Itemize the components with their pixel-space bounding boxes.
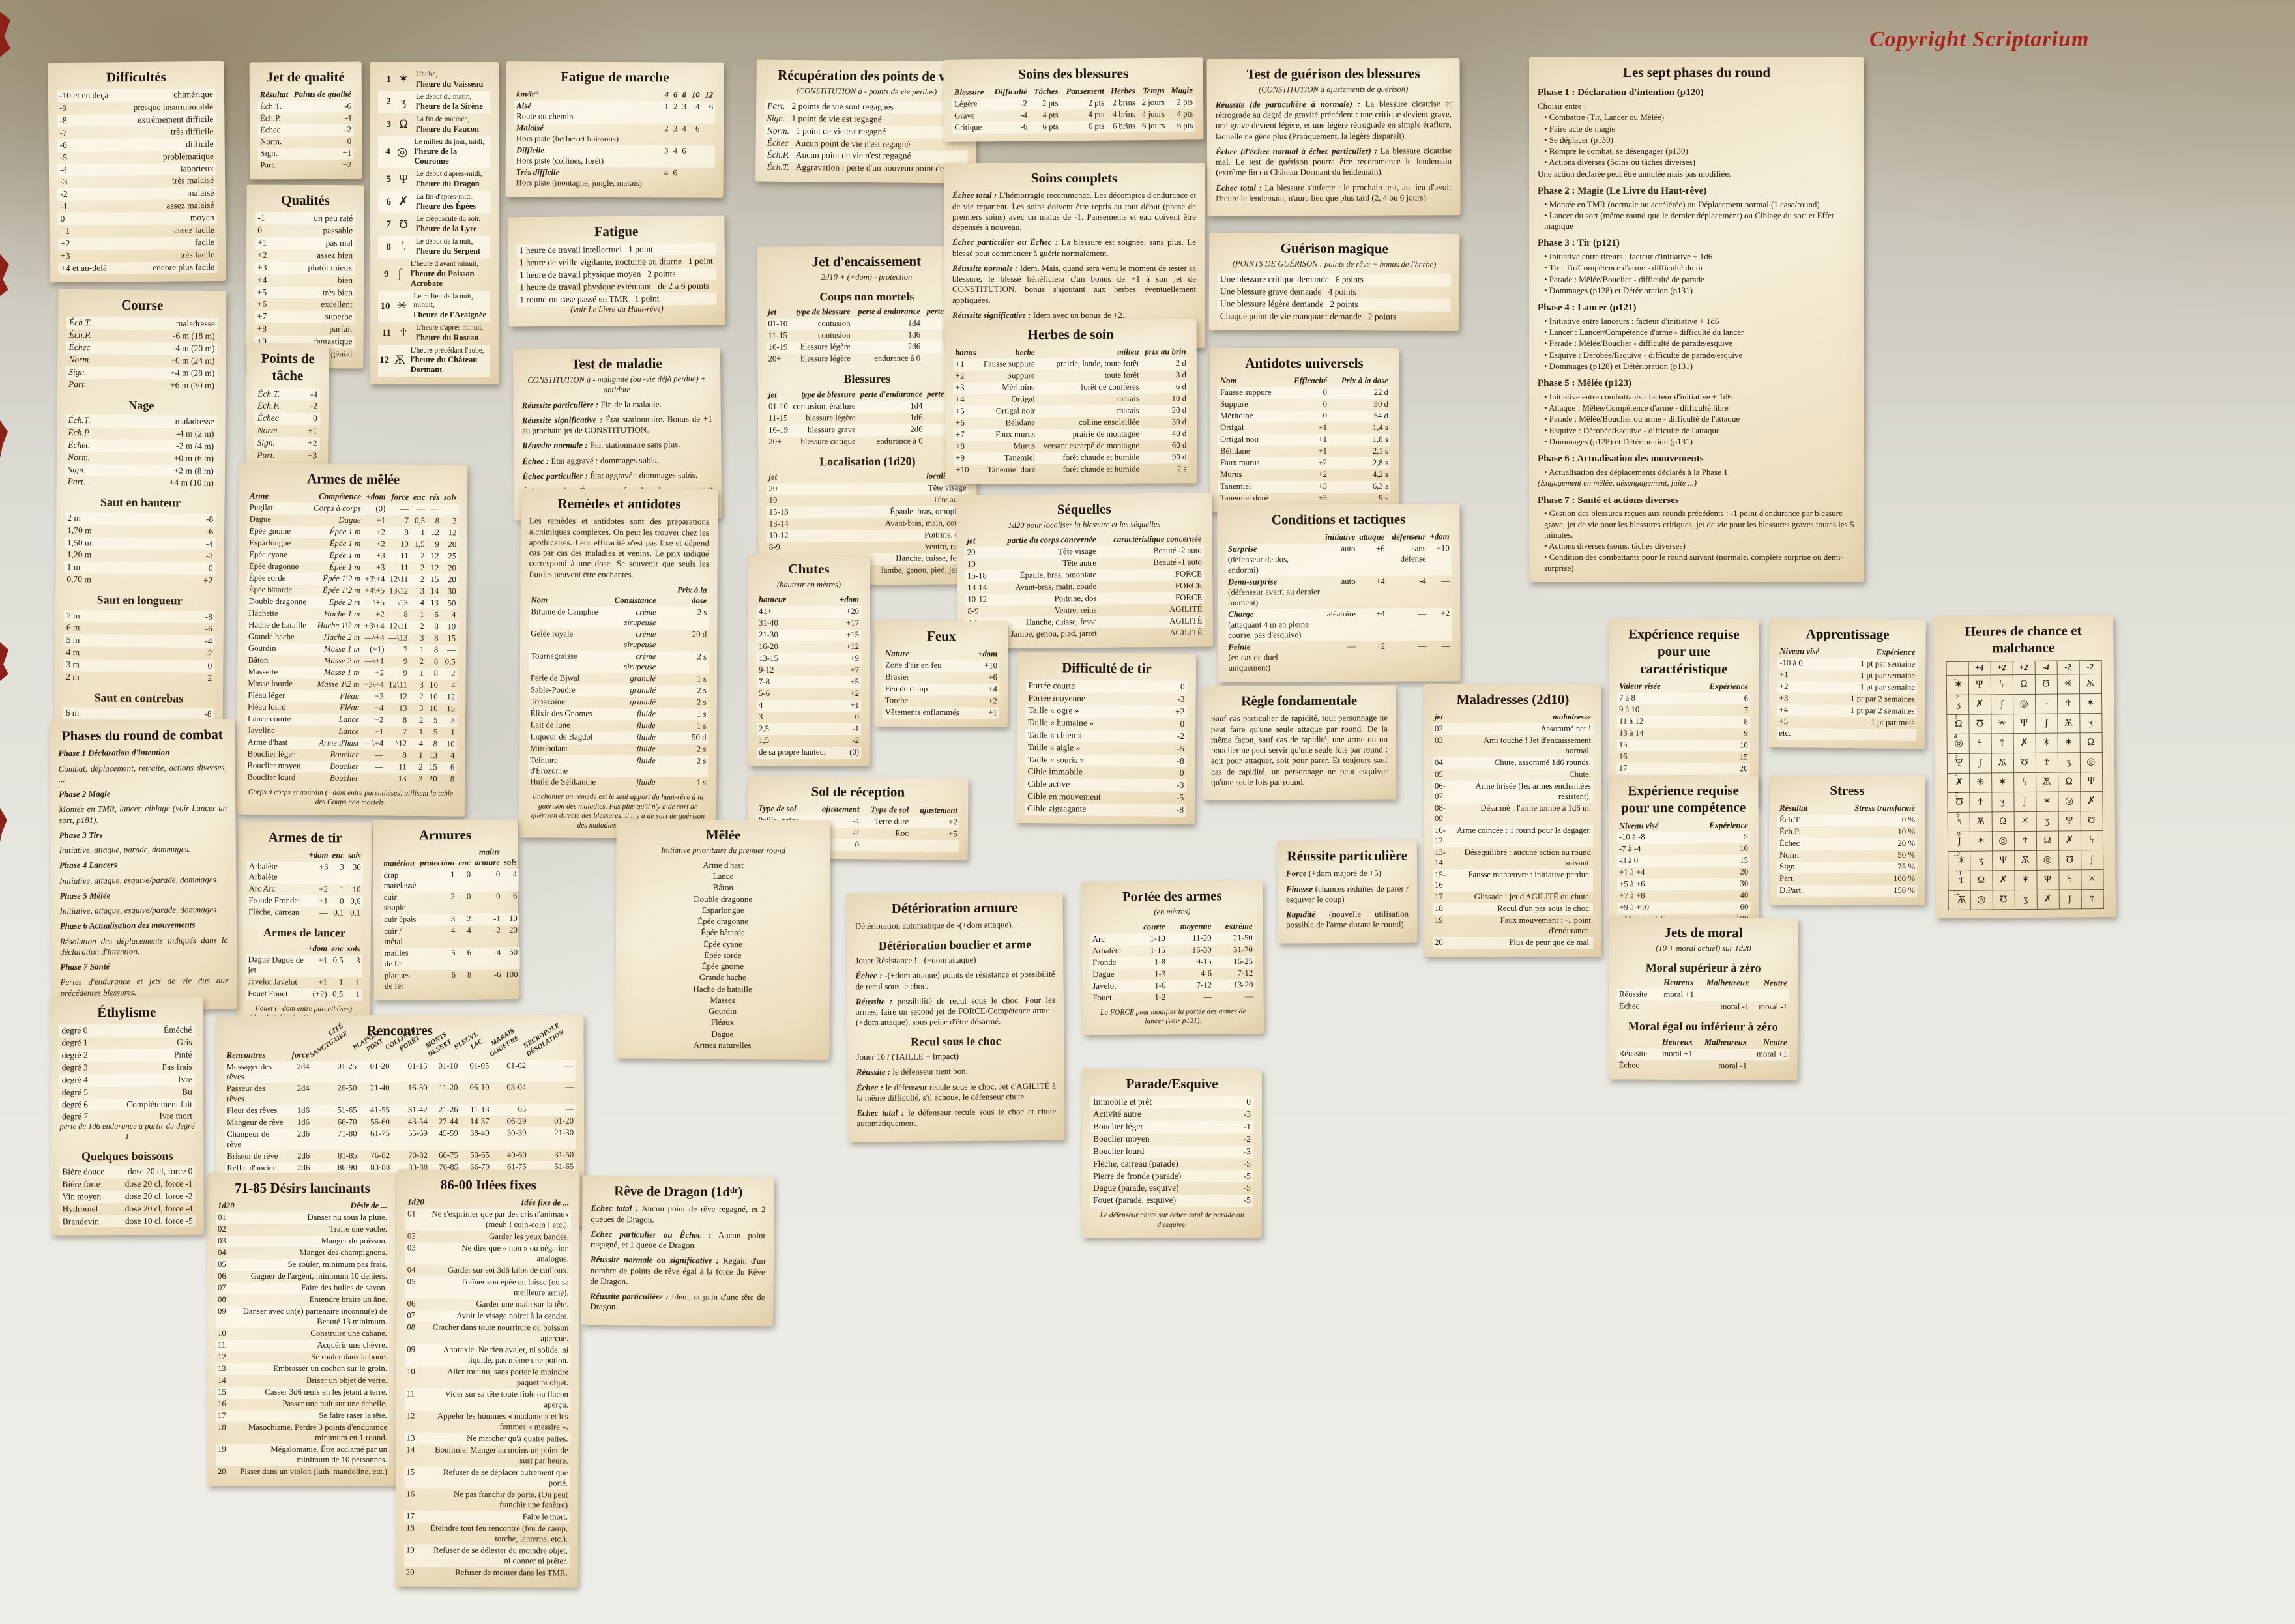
cell: 2 brins	[1106, 97, 1137, 109]
column-header: milieu	[1036, 347, 1141, 359]
card-title: Portée des armes	[1090, 887, 1254, 905]
cell: 15	[426, 574, 441, 586]
paragraph-lead: Phase 4 Lancers	[59, 860, 117, 871]
cell: —	[1387, 641, 1428, 673]
table-row: Fronde1-89-1516-25	[1090, 956, 1255, 969]
cell: Épée dragonne	[247, 561, 310, 573]
cell: Traîner son épée en laisse (ou sa meille…	[426, 1277, 571, 1299]
cell: +6	[972, 672, 999, 684]
card-difficulte-tir: Difficulté de tirPortée courte0Portée mo…	[1016, 652, 1196, 824]
cell: Faire des bulles de savon.	[237, 1283, 389, 1294]
cell: Masse 2 m	[309, 655, 361, 667]
column-header: extrême	[1213, 921, 1254, 933]
row-value: problématique	[163, 151, 214, 163]
table-row: 06-07Arme brisée (les armes enchantées r…	[1433, 781, 1593, 803]
column-header: Valeur visée	[1617, 680, 1686, 692]
column-header	[1090, 921, 1133, 934]
cell: 2	[662, 124, 671, 146]
cell: Épaule, bras, omoplate	[992, 570, 1098, 582]
cell: 17	[1617, 762, 1686, 774]
table-head: +domencsols	[246, 942, 362, 955]
paragraph: Échec particulier ou Échec : La blessure…	[952, 237, 1196, 259]
cell: Hanche, cuisse, fesse	[993, 616, 1099, 629]
table-body: Dague Dague de jet+10,53Javelot Javelot+…	[246, 954, 362, 1000]
paragraph: Échec : le défenseur recule sous le choc…	[856, 1080, 1056, 1103]
row-label: Norm.	[68, 452, 90, 463]
cell: Tête autre	[992, 558, 1098, 570]
dragon-hour-icon: Ω	[2013, 674, 2035, 694]
line: • Parade : Mêlée/Bouclier - difficulté d…	[1544, 274, 1856, 285]
cell: D.Part.	[1777, 885, 1824, 897]
cell: 4	[440, 680, 458, 691]
dragon-hour-icon: Ѫ	[2014, 850, 2036, 870]
dragon-hour-icon: ◎	[2080, 752, 2102, 772]
cell: Dague	[1090, 968, 1133, 981]
line: • Actions diverses (Soins ou tâches dive…	[1544, 157, 1856, 167]
table-row: 19Faux mouvement : -1 point d'endurance.	[1433, 915, 1593, 937]
column-header: herbe	[979, 347, 1036, 358]
row-value: -2	[205, 648, 212, 660]
cell: 40-60	[491, 1150, 529, 1162]
dragon-hour-icon: Ʊ	[2081, 811, 2103, 830]
dragon-hour-icon: ʃ	[394, 267, 406, 282]
table-row: Taille « humaine »0	[1025, 717, 1187, 731]
table-row: -9presque insurmontable	[57, 101, 216, 115]
table-row: Norm.+0 m (6 m)	[65, 452, 216, 465]
cell: 4	[688, 102, 702, 124]
line: Une action déclarée peut être annulée ma…	[1538, 169, 1856, 179]
cell: +3	[954, 383, 980, 394]
row-value: -8	[205, 611, 212, 622]
paragraph: Sauf cas particulier de rapidité, tout p…	[1211, 713, 1388, 788]
cell: Fléau léger	[246, 690, 309, 703]
cell: FORCE	[1098, 580, 1204, 592]
row-value: -5	[1177, 744, 1184, 755]
cell: 05	[1433, 769, 1454, 781]
row-value: +4 m (28 m)	[170, 368, 214, 379]
table-row: 0,70 m+2	[64, 573, 215, 587]
line: • Initiative entre combattants : facteur…	[1544, 392, 1856, 402]
cell: 01-02	[491, 1060, 528, 1082]
column-header: 1d20	[405, 1197, 426, 1209]
data-table: Nature+domZone d'air en feu+10Brasier+6F…	[883, 648, 999, 719]
hour-description: Le début d'après-midi,	[416, 170, 482, 179]
table-row: Sign.+4 m (28 m)	[66, 366, 217, 380]
cell: 1-8	[1133, 957, 1167, 968]
table-row: Échec-2	[258, 124, 353, 137]
card-title: Course	[66, 296, 218, 314]
card-deterioration: Détérioration armureDétérioration automa…	[846, 892, 1064, 1142]
row-label: Part.	[68, 476, 86, 487]
cell: 3	[408, 774, 424, 785]
cell: 10	[216, 1328, 237, 1340]
row-value: dose 20 cl, force 0	[128, 1167, 192, 1178]
table-row: Portée moyenne-3	[1025, 692, 1187, 706]
hour-text: L'heure précédant l'aube,l'heure du Chât…	[411, 347, 489, 375]
hour-row: 12ѪL'heure précédant l'aube,l'heure du C…	[378, 345, 490, 377]
cell: fluide	[599, 777, 657, 789]
paragraph-lead: Phase 2 Magie	[59, 789, 111, 799]
paragraphs: Les remèdes et antidotes sont des prépar…	[529, 516, 709, 581]
column-header: Niveau visé	[1617, 820, 1689, 832]
cell: 12\11	[387, 621, 410, 633]
paragraph-lead: Échec (d'échec normal à échec particulie…	[1216, 146, 1377, 156]
row-label: 0	[61, 214, 65, 225]
table-row: Javelot1-67-1213-20	[1090, 979, 1255, 993]
section-subtitle: (10 + moral actuel) sur 1d20	[1617, 944, 1789, 955]
column-header: matériau	[381, 848, 418, 870]
cell: 19	[404, 1544, 425, 1567]
column-header: Stress transformé	[1824, 803, 1917, 815]
cell: 10	[387, 539, 411, 551]
row-value: -2	[1244, 1134, 1251, 1145]
cell: auto	[1323, 544, 1357, 576]
cell: 12\11	[387, 574, 410, 586]
table-row: plaques de fer68-6100	[383, 969, 520, 993]
cell: Garder une main sur la tête.	[426, 1299, 570, 1311]
data-table: BlessureDifficultéTâchesPansementHerbesT…	[952, 85, 1195, 134]
cell: 18	[1433, 903, 1454, 915]
cell: Appeler les hommes « madame » et les fem…	[425, 1411, 570, 1434]
table-row: +11 pt par semaine	[1777, 669, 1917, 682]
cell: 5	[1689, 832, 1750, 843]
cell: forêt de conifères	[1037, 382, 1141, 394]
cell: Feu de camp	[883, 684, 972, 696]
card-title: Sol de réception	[756, 783, 959, 802]
cell: Javelot	[1090, 980, 1133, 993]
row-value: -3	[1177, 780, 1184, 791]
hours-list: 1✶L'aube,l'heure du Vaisseau2ʒLe début d…	[378, 68, 490, 377]
table-row: Échec20 %	[1777, 838, 1917, 850]
column-header: prix au brin	[1141, 346, 1188, 358]
row-label: Chaque point de vie manquant demande	[1220, 311, 1362, 323]
table-row: 01-10contusion1d40	[766, 318, 967, 330]
hour-number: 7	[379, 218, 391, 231]
cell: Ne s'exprimer que par des cris d'animaux…	[426, 1209, 572, 1232]
column-header: enc	[329, 943, 345, 955]
cell: Ami touché ! Jet d'encaissement normal.	[1454, 735, 1593, 757]
cell: +9 à +10	[1617, 902, 1689, 914]
table-row: cuir épais32-110	[382, 913, 519, 926]
cell: 2	[409, 715, 425, 727]
card-herbes-soin: Herbes de soinbonusherbemilieuprix au br…	[944, 319, 1197, 484]
table-row: 41++20	[757, 606, 861, 618]
row-value: un peu raté	[314, 213, 353, 224]
card-heures-jour: 1✶L'aube,l'heure du Vaisseau2ʒLe début d…	[370, 62, 499, 384]
cell: 22 d	[1329, 387, 1390, 399]
row-label: Hydromel	[63, 1204, 98, 1215]
table-row: -7 à -410	[1617, 843, 1750, 856]
card-title: Points de tâche	[255, 350, 320, 384]
column-header: enc	[411, 492, 427, 504]
dragon-hour-icon: ◎	[2058, 791, 2080, 811]
paragraphs: Jouer 10 / (TAILLE + Impact)Réussite : l…	[856, 1051, 1056, 1129]
cell: Dague	[248, 514, 311, 527]
row-value: 1 point de vie est regagné	[791, 113, 881, 125]
cell: 8	[458, 970, 474, 992]
table-row: 20Plus de peur que de mal.	[1433, 937, 1593, 949]
cell: 03	[1433, 735, 1454, 757]
cell: -4	[1387, 576, 1428, 609]
cell: +1	[306, 955, 329, 977]
table-row: Javelot Javelot+111	[246, 976, 362, 989]
cell: 06	[216, 1271, 237, 1283]
cell: Critique	[952, 122, 989, 134]
cell: 3	[441, 515, 459, 527]
data-table: 1d20Désir de ...01Danser nu sous la plui…	[216, 1200, 389, 1478]
cell: Lance	[308, 725, 360, 738]
cell: plaques de fer	[383, 970, 419, 992]
kv-table: -1un peu raté0passable+1pas mal+2assez b…	[254, 212, 355, 360]
cell: Méritoine	[1218, 411, 1285, 422]
hour-description: La fin de matinée,	[416, 115, 479, 124]
card-fatigue-marche: Fatigue de marchekm/hᵈʳ4681012Aisé Route…	[506, 61, 724, 198]
row-label: degré 4	[62, 1075, 88, 1086]
paragraph-lead: Réussite normale :	[522, 441, 588, 451]
table-row: Échecmoral -1	[1617, 1060, 1789, 1072]
row-value: dose 10 cl, force -5	[125, 1215, 193, 1226]
row-label: Cible en mouvement	[1027, 791, 1101, 803]
dragon-hour-icon: ✳	[2057, 674, 2079, 693]
cell: —	[411, 504, 427, 515]
cell: Légère	[952, 98, 989, 110]
kv-table: 2 m-81,70 m-61,50 m-41,20 m-21 m00,70 m+…	[64, 512, 216, 587]
cell: +2	[361, 714, 386, 726]
hour-row: 4◎Le milieu du jour, midi,l'heure de la …	[378, 136, 490, 169]
cell: 2 pts	[1029, 98, 1060, 109]
table-row: 16-20+12	[757, 641, 861, 653]
row-value: bien	[338, 275, 353, 286]
kv-table: Une blessure critique demande6 pointsUne…	[1218, 273, 1451, 323]
cell: Faire le mort.	[425, 1511, 570, 1523]
line: Fléaux	[624, 1017, 821, 1029]
card-desirs-lancinants: 71-85 Désirs lancinants1d20Désir de ...0…	[207, 1173, 398, 1486]
cell: 01-25	[312, 1061, 359, 1083]
cell: 38-49	[460, 1128, 491, 1150]
dragon-hour-icon: ✶	[2079, 693, 2101, 713]
cell: Refuser de se délester du moindre objet,…	[424, 1544, 570, 1567]
cell: —	[427, 504, 441, 515]
table-row: Éch.T.0 %	[1777, 815, 1917, 826]
row-value: Aucun point de vie n'est regagné	[796, 150, 911, 162]
column-header: force	[387, 492, 411, 504]
table-row: 0passable	[255, 225, 355, 238]
column-header: sols	[346, 850, 363, 862]
cell: 2 d	[1141, 358, 1188, 370]
paragraph-lead: Échec :	[856, 1082, 883, 1092]
card-maladresses: Maladresses (2d10)jetmaladresse02Assommé…	[1424, 684, 1601, 957]
cell: 10	[439, 738, 457, 750]
hour-description: L'aube,	[416, 70, 483, 80]
table-row: Arbalète Arbalète+3330	[247, 861, 363, 884]
table-row: Sign.75 %	[1777, 862, 1917, 873]
row-label: 2 m	[67, 513, 81, 524]
cell: 2 s	[658, 755, 709, 777]
row-value: +3	[308, 450, 317, 461]
row-label: Fouet (parade, esquive)	[1093, 1195, 1176, 1206]
cell: Torche	[883, 695, 972, 708]
cell: 15	[425, 762, 439, 774]
table-row: +9Tanemielforêt chaude et humide90 d	[954, 452, 1188, 465]
cell: 6,3 s	[1329, 481, 1390, 493]
hour-number: 2	[1954, 694, 1959, 703]
row-label: 5 m	[66, 635, 80, 646]
cell: auto	[1323, 576, 1357, 609]
cell: -4	[473, 947, 503, 969]
table-row: Sable-Poudregranulé2 s	[529, 684, 709, 697]
cell: 4	[679, 124, 688, 146]
column-header: 1d20	[216, 1200, 237, 1212]
row-value: plutôt mieux	[308, 263, 353, 274]
data-table: Niveau viséExpérience-10 à -85-7 à -410-…	[1617, 820, 1751, 926]
cell: colline ensoleillée	[1037, 417, 1141, 429]
cell: 09	[405, 1344, 426, 1366]
table-row: bonusherbemilieuprix au brin	[954, 346, 1188, 359]
cell: Changeur de rêve	[225, 1129, 286, 1151]
cell: Faux mouvement : -1 point d'endurance.	[1454, 915, 1593, 937]
cell: 9	[386, 667, 409, 679]
cell: Tournegraisse	[529, 650, 600, 673]
cell: +1	[1285, 434, 1329, 446]
cell: —	[1428, 641, 1452, 673]
paragraph-text: le défenseur tient bon.	[892, 1066, 968, 1077]
cell: Bouclier lourd	[245, 772, 308, 784]
hour-number: 6	[379, 196, 391, 209]
hour-number: 9	[379, 268, 389, 281]
table-row: Pierre de fronde (parade)-5	[1090, 1170, 1253, 1183]
cell: moral -1	[1696, 1001, 1751, 1013]
hour-number: 3	[1953, 714, 1957, 722]
cell: 81-85	[312, 1151, 359, 1163]
row-value: 0	[1180, 768, 1184, 779]
table-row: +5très bien	[255, 286, 355, 299]
cell: 26-50	[312, 1083, 359, 1105]
table-row: 10✳ʒΨѪ◎Ʊʃ	[1948, 850, 2103, 871]
table-row: +8parfait	[255, 323, 355, 336]
cell: +2	[911, 817, 959, 829]
data-table: courtemoyenneextrêmeArc1-1011-2021-50Arb…	[1090, 921, 1255, 1004]
cell: Beauté -2 auto	[1098, 545, 1204, 557]
hour-number: 11	[1954, 869, 1962, 878]
cell: 06	[405, 1299, 426, 1311]
cell: 2	[409, 691, 426, 703]
data-table: matériauprotectionencmalus armuresolsdra…	[381, 847, 520, 993]
table-row: Chaque point de vie manquant demande2 po…	[1218, 310, 1451, 323]
cell: +2	[1358, 641, 1387, 674]
hour-description: Le crépuscule du soir,	[416, 215, 480, 224]
table-row: Lait de lunefluide1 s	[529, 719, 709, 732]
cell: 5	[425, 727, 439, 738]
card-difficultes: Difficultés-10 et en deçàchimérique-9pre…	[48, 61, 226, 283]
dragon-hour-icon: Ψ	[2036, 870, 2058, 890]
cell: 4	[457, 925, 473, 948]
row-label: -7	[59, 128, 66, 139]
cell	[861, 839, 911, 852]
cell: Brasier	[883, 672, 972, 684]
cell: 2,1 s	[1329, 446, 1390, 457]
table-row: Bélidane+12,1 s	[1218, 446, 1390, 457]
cell: 0,5	[411, 515, 427, 527]
row-label: Éch.P.	[767, 150, 789, 161]
table-row: +5Ortigal noirmarais20 d	[954, 405, 1188, 418]
paragraph-lead: Phase 1 Déclaration d'intention	[58, 747, 169, 758]
table-row: HeureuxMalheureuxNeutre	[1617, 1036, 1789, 1049]
paragraph: Rapidité (nouvelle utilisation possible …	[1286, 909, 1409, 931]
cell: blessure légère	[790, 413, 857, 424]
cell: 43-54	[392, 1116, 430, 1128]
column-header: défenseur	[1386, 532, 1427, 544]
cell: Traire une vache.	[237, 1224, 389, 1236]
cell: Déséquilibré : aucune action au round su…	[1454, 847, 1593, 869]
cell: —\+4	[362, 632, 387, 644]
cell: 1	[410, 609, 426, 621]
table-row: +7 à +840	[1617, 890, 1750, 903]
line: (Engagement en mêlée, désengagement, fui…	[1538, 478, 1856, 489]
row-label: +2	[257, 250, 267, 261]
row-label: degré 2	[62, 1050, 88, 1061]
cell: 11-15	[766, 330, 791, 342]
cell: 8	[439, 774, 457, 785]
cell: blessure légère	[791, 353, 852, 365]
cell: Gelée royale	[529, 628, 600, 650]
row-label: -8	[59, 115, 66, 126]
cell: etc.	[1777, 728, 1831, 740]
dragon-hour-icon: Ʊ	[1993, 890, 2015, 909]
cell: 3	[679, 102, 688, 124]
hour-text: La fin de matinée,l'heure du Faucon	[416, 115, 479, 134]
card-title: Phases du round de combat	[58, 726, 226, 745]
cell: 16-19	[767, 342, 791, 354]
cell: 2 s	[658, 651, 709, 673]
column-header: +dom	[363, 491, 388, 503]
line: • Esquive : Dérobée/Esquive - difficulté…	[1544, 350, 1856, 360]
cell: +6	[954, 418, 980, 429]
table-row: 1,70 m-6	[65, 525, 216, 538]
cell: Flèche, carreau	[246, 906, 306, 919]
hour-row: 6✗La fin d'après-midi,l'heure des Épées	[378, 191, 490, 214]
cell: fluide	[599, 743, 657, 755]
row-label: 1 heure de travail physique moyen	[519, 269, 641, 282]
cell: 12	[427, 527, 441, 539]
table-row: 15-16Fausse manœuvre : initiative perdue…	[1433, 869, 1593, 892]
cell: 1	[345, 977, 362, 989]
cell: AGILITÉ	[1098, 603, 1204, 616]
section-heading: Armes de lancer	[246, 925, 362, 940]
cell: 10	[1689, 843, 1750, 855]
section-heading: Saut en contrebas	[63, 690, 214, 706]
row-label: 2 m	[66, 672, 80, 683]
cell: 20 %	[1824, 838, 1917, 850]
cell: 61-75	[359, 1128, 392, 1150]
table-head: +domencsols	[247, 849, 363, 862]
cell: 12\11	[386, 679, 409, 691]
section-heading: Recul sous le choc	[856, 1033, 1055, 1049]
card-title: Jet de qualité	[258, 68, 353, 86]
cell: 1 s	[658, 673, 709, 685]
table-row: +9 à +1060	[1617, 902, 1750, 914]
cell: Bouclier	[308, 749, 360, 761]
card-title: Maladresses (2d10)	[1433, 691, 1593, 708]
cell: Épaule, bras, omoplate	[808, 506, 968, 518]
cell: Briser un objet de verre.	[237, 1375, 389, 1387]
data-table: RésultatPoints de qualitéÉch.T.-6Éch.P.-…	[258, 89, 354, 172]
column-header: attaque	[1357, 532, 1386, 544]
cell: 6 brins	[1106, 121, 1137, 132]
table-row: Échec-4 m (20 m)	[66, 341, 217, 355]
cell: (0)	[363, 503, 388, 515]
table-row: -7très difficile	[57, 126, 216, 139]
cell: 20	[441, 574, 458, 586]
